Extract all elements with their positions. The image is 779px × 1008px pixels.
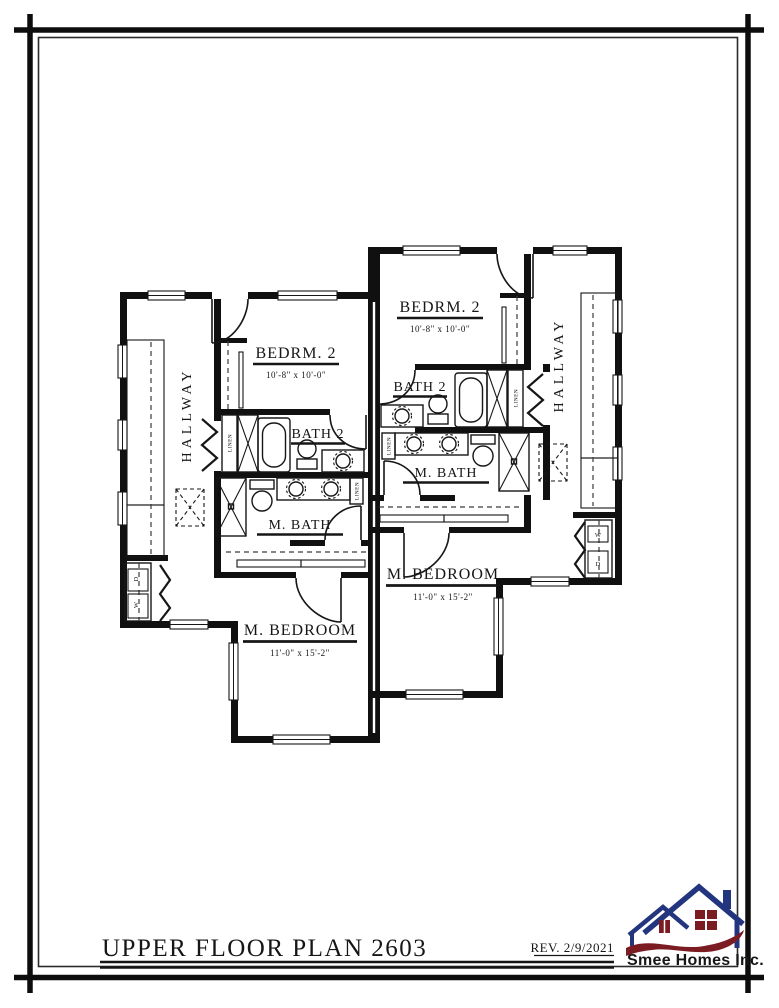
right-dryer-label: D <box>596 561 601 568</box>
shower-icon <box>499 433 529 491</box>
left-master-bedroom-door <box>296 578 341 622</box>
left-labels: HALLWAY BEDRM. 2 10'-8" x 10'-0" BATH 2 … <box>180 345 357 658</box>
window <box>118 492 127 525</box>
double-vanity <box>277 478 350 500</box>
revision-label: REV. 2/9/2021 <box>530 940 614 955</box>
left-stairs <box>127 340 164 557</box>
left-linen-closet: LINEN <box>222 415 237 472</box>
vanity <box>322 450 364 472</box>
sink-icon <box>393 407 412 426</box>
toilet-icon <box>250 480 274 511</box>
left-linen-bath-closet: LINEN <box>350 478 363 504</box>
vanity <box>381 405 423 427</box>
left-walls <box>120 247 380 743</box>
right-linen-bath-closet: LINEN <box>382 433 395 459</box>
right-hallway-label: HALLWAY <box>552 318 567 413</box>
logo-window <box>695 910 717 930</box>
double-vanity <box>395 433 468 455</box>
drawing-sheet: LINEN <box>0 0 779 1008</box>
left-master-bedroom-label: M. BEDROOM <box>244 622 356 639</box>
window <box>531 577 569 586</box>
left-linen-bifold-door <box>202 419 217 471</box>
window <box>229 643 238 700</box>
right-laundry: W D <box>575 520 612 578</box>
right-closets: LINEN <box>379 296 567 522</box>
window <box>278 291 337 300</box>
right-hall-cabinet <box>487 370 507 427</box>
window <box>273 735 330 744</box>
right-washer-label: W <box>595 532 602 539</box>
left-linen-hall-label: LINEN <box>228 434 234 452</box>
right-master-bedroom-dim: 11'-0" x 15'-2" <box>413 592 473 602</box>
left-bedroom2-dim: 10'-8" x 10'-0" <box>266 370 326 380</box>
window <box>406 690 463 699</box>
toilet-icon <box>428 395 448 424</box>
left-linen-bath-label: LINEN <box>355 482 361 500</box>
right-linen-closet: LINEN <box>508 370 523 427</box>
unit-right: LINEN <box>370 246 622 699</box>
left-hall-cabinet <box>238 415 258 472</box>
window <box>553 246 587 255</box>
right-master-bath-label: M. BATH <box>414 466 477 481</box>
floor-plan-drawing: LINEN <box>0 0 779 1008</box>
inner-border <box>39 38 738 967</box>
window <box>148 291 185 300</box>
company-name: Smee Homes Inc. <box>627 952 764 969</box>
window <box>170 620 208 629</box>
left-hallway-label: HALLWAY <box>180 368 195 463</box>
left-bath2-label: BATH 2 <box>291 427 344 442</box>
window <box>494 598 503 655</box>
right-bedroom2-label: BEDRM. 2 <box>400 299 481 316</box>
left-laundry-bifold-door <box>160 565 170 621</box>
right-bath2-label: BATH 2 <box>393 380 446 395</box>
left-bedroom2-label: BEDRM. 2 <box>256 345 337 362</box>
unit-left: LINEN <box>118 247 380 744</box>
left-attic-access <box>176 489 204 526</box>
left-washer-label: W <box>133 601 140 608</box>
window <box>118 345 127 378</box>
left-master-bedroom-dim: 11'-0" x 15'-2" <box>270 648 330 658</box>
logo-small-window <box>659 920 670 933</box>
window <box>118 420 127 450</box>
left-master-bath-label: M. BATH <box>268 518 331 533</box>
right-linen-bath-label: LINEN <box>387 437 393 455</box>
title-block: UPPER FLOOR PLAN 2603 REV. 2/9/2021 <box>100 935 614 968</box>
right-linen-hall-label: LINEN <box>514 389 520 407</box>
sink-icon <box>405 435 424 454</box>
window <box>403 246 460 255</box>
bathtub-icon <box>455 373 487 427</box>
toilet-icon <box>471 435 495 466</box>
bathtub-icon <box>258 418 290 472</box>
right-master-bedroom-label: M. BEDROOM <box>387 566 499 583</box>
right-linen-bifold-door <box>528 374 543 426</box>
left-dryer-label: D <box>133 576 140 581</box>
sink-icon <box>322 480 341 499</box>
right-laundry-bifold-door <box>575 522 585 578</box>
plan-title: UPPER FLOOR PLAN 2603 <box>102 935 427 962</box>
right-bedroom2-dim: 10'-8" x 10'-0" <box>410 324 470 334</box>
left-laundry: D W <box>125 563 170 621</box>
company-logo: Smee Homes Inc. <box>626 887 764 969</box>
sink-icon <box>440 435 459 454</box>
sink-icon <box>334 452 353 471</box>
sink-icon <box>287 480 306 499</box>
